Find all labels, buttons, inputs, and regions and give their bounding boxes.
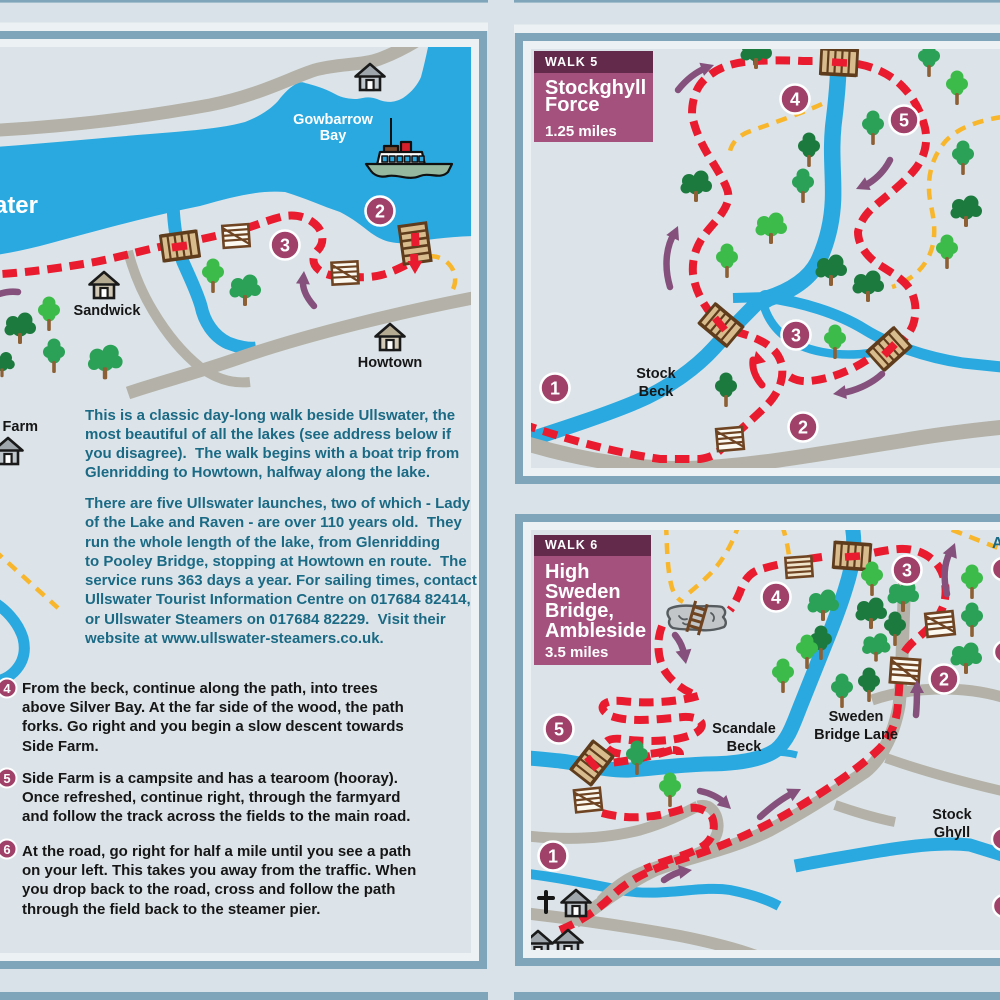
- svg-text:Beck: Beck: [727, 739, 763, 755]
- svg-text:Beck: Beck: [639, 384, 675, 400]
- svg-text:3: 3: [280, 236, 290, 256]
- svg-text:Stock: Stock: [932, 807, 972, 823]
- svg-text:Scandale: Scandale: [712, 721, 776, 737]
- svg-text:Bridge Lane: Bridge Lane: [814, 727, 898, 743]
- svg-text:5: 5: [554, 720, 564, 740]
- svg-text:4: 4: [3, 681, 11, 696]
- svg-text:Gowbarrow: Gowbarrow: [293, 112, 373, 128]
- svg-text:Side Farm: Side Farm: [0, 419, 38, 435]
- svg-text:Sweden: Sweden: [829, 709, 884, 725]
- svg-text:5: 5: [899, 111, 909, 131]
- svg-text:6: 6: [3, 842, 10, 857]
- svg-text:Bay: Bay: [320, 128, 347, 144]
- svg-text:A: A: [992, 535, 1000, 552]
- svg-text:4: 4: [790, 90, 800, 110]
- svg-text:Howtown: Howtown: [358, 355, 422, 371]
- svg-text:3: 3: [791, 326, 801, 346]
- svg-text:Ullswater: Ullswater: [0, 192, 38, 219]
- svg-text:2: 2: [798, 418, 808, 438]
- svg-text:2: 2: [939, 670, 949, 690]
- svg-text:2: 2: [375, 202, 385, 222]
- svg-text:1: 1: [550, 379, 560, 399]
- svg-text:4: 4: [771, 588, 781, 608]
- svg-text:5: 5: [3, 771, 10, 786]
- svg-text:Stock: Stock: [636, 366, 676, 382]
- svg-text:Sandwick: Sandwick: [74, 303, 142, 319]
- svg-text:1: 1: [548, 847, 558, 867]
- svg-text:3: 3: [902, 561, 912, 581]
- svg-text:Ghyll: Ghyll: [934, 825, 970, 841]
